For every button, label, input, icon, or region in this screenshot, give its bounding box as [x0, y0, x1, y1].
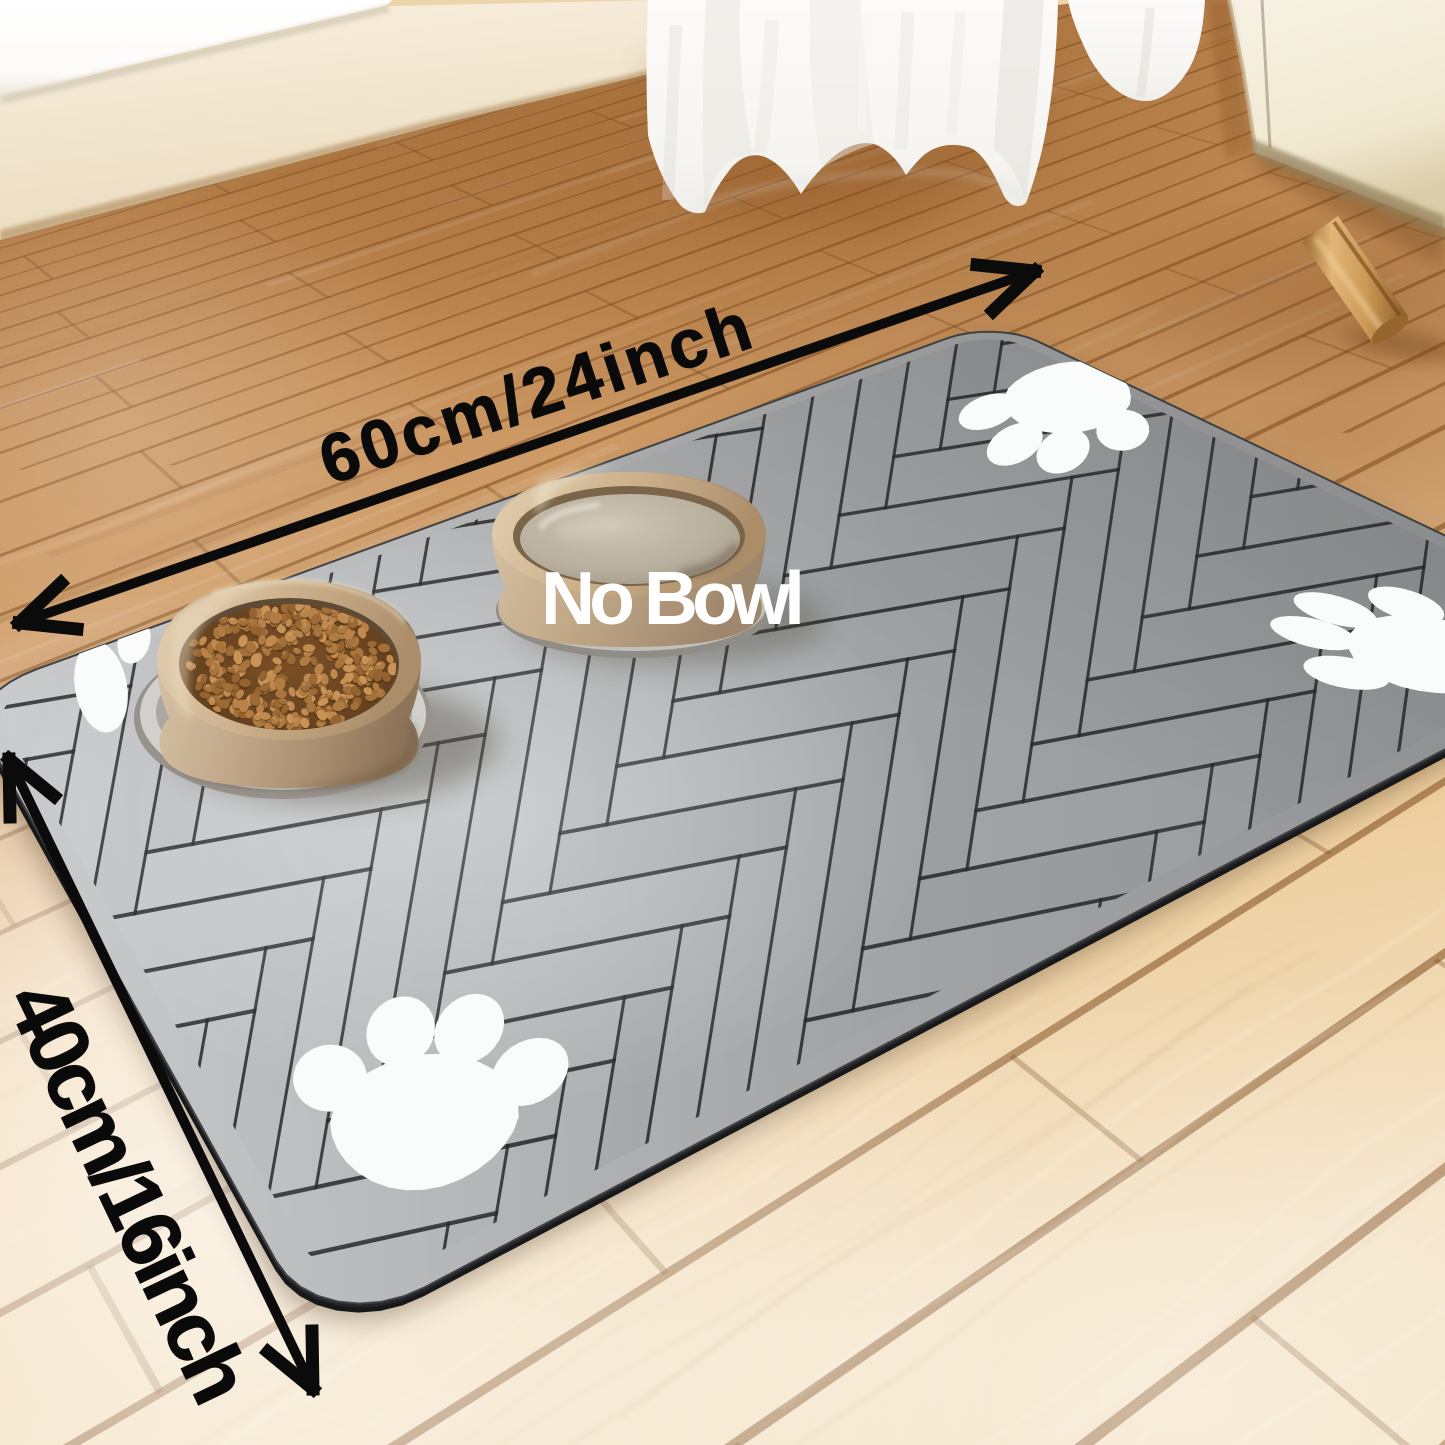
- svg-text:No Bowl: No Bowl: [541, 556, 800, 640]
